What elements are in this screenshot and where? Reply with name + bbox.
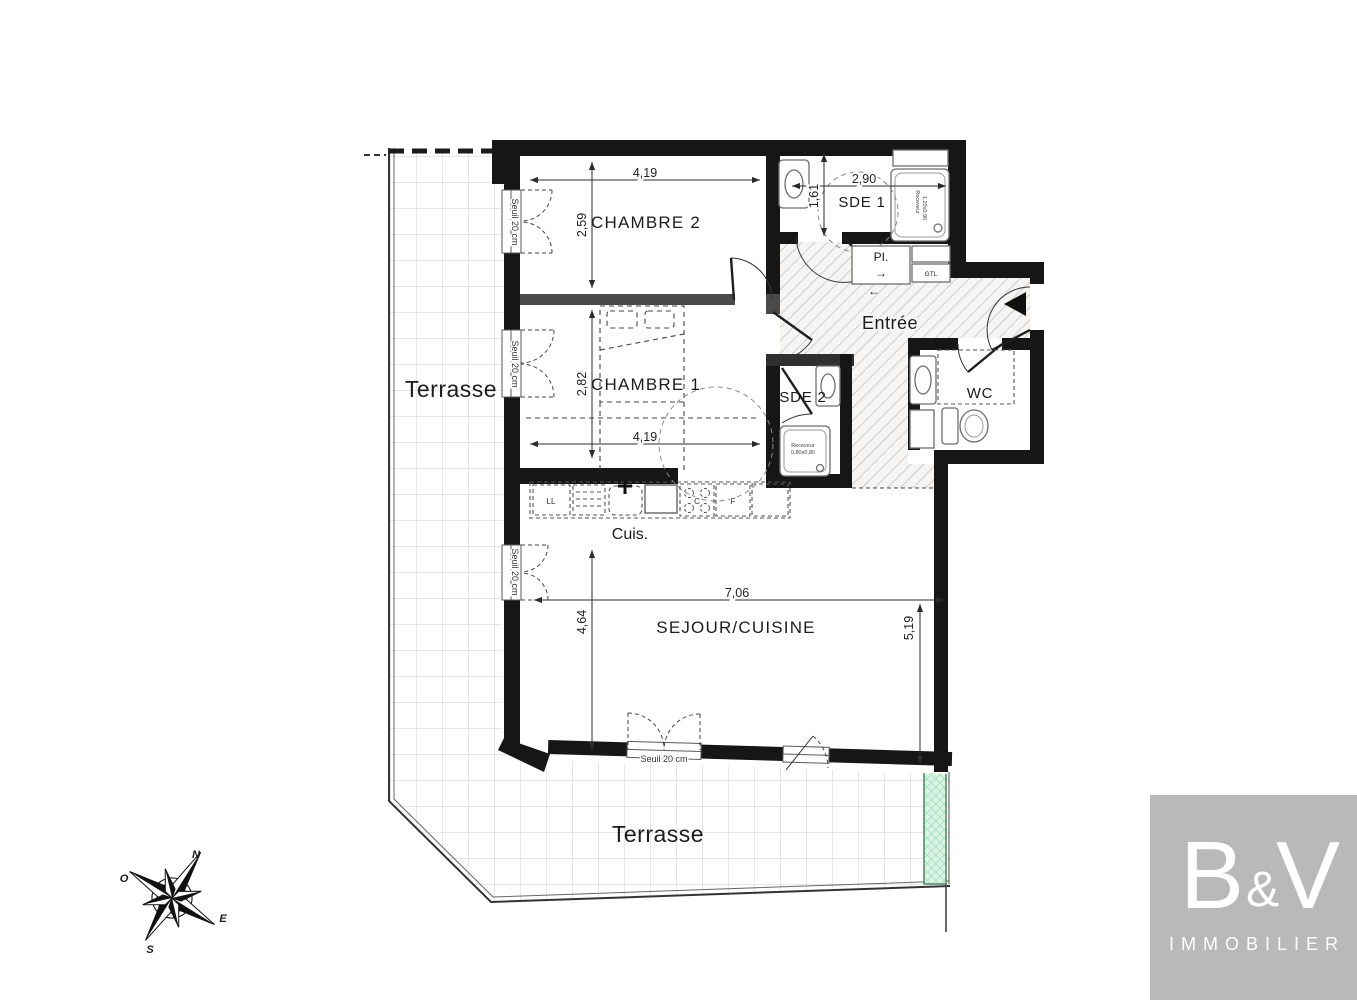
dim-sejour-width: 7,06 [725,586,749,600]
room-label-chambre2: CHAMBRE 2 [591,213,701,232]
seuil-label-4: Seuil 20 cm [640,754,687,764]
room-label-chambre1: CHAMBRE 1 [591,375,701,394]
arrow-left-icon: ← [868,284,880,298]
compass-east-label: E [219,913,227,925]
compass-west-label: O [120,873,129,885]
arrow-right-icon: → [875,266,887,280]
dim-sde1-width: 2,90 [852,172,876,186]
floor-plan-page: Terrasse Terrasse [0,0,1357,1000]
terrace-left-label: Terrasse [405,376,497,402]
kitchen-unit [645,485,677,513]
room-label-cuisine: Cuis. [612,526,648,543]
washbasin-icon [779,160,809,208]
room-label-sde2: SDE 2 [779,389,826,406]
dim-sde1-height: 1,61 [807,184,821,208]
cabinet [910,410,934,448]
dim-chambre1-height: 2,82 [575,372,589,396]
terrace-bottom-label: Terrasse [612,821,704,847]
dim-sejour-height-left: 4,64 [575,610,589,634]
room-label-entree: Entrée [862,313,918,333]
shower-icon: Receveur 1,20x0,90 [891,169,949,241]
placard-label: PI. [874,250,889,264]
dim-sejour-height-right: 5,19 [902,616,916,640]
svg-text:1,20x0,90: 1,20x0,90 [921,196,927,220]
compass-rose-icon: N O E S [103,826,243,967]
toilet-icon [942,408,988,444]
planter-green-element [924,772,946,884]
seuil-label-1: Seuil 20 cm [510,198,520,245]
svg-text:C: C [694,497,700,506]
svg-text:Receveur: Receveur [914,190,920,214]
compass-north-label: N [192,849,201,861]
shower-icon: Receveur 0,80x0,80 [780,426,830,476]
dim-chambre1-width: 4,19 [633,430,657,444]
shelf [893,150,948,166]
gtl-label: GTL [925,271,938,278]
compass-south-label: S [146,944,154,956]
svg-text:Receveur: Receveur [791,443,815,449]
dim-chambre2-height: 2,59 [575,213,589,237]
svg-text:LL: LL [547,497,556,506]
svg-text:F: F [731,497,736,506]
floor-plan-drawing: Terrasse Terrasse [0,0,1357,1000]
room-label-wc: WC [967,385,994,402]
seuil-label-2: Seuil 20 cm [510,340,520,387]
dim-chambre2-width: 4,19 [633,166,657,180]
logo-subtitle: IMMOBILIER [1169,934,1345,954]
seuil-label-3: Seuil 20 cm [510,548,520,595]
room-label-sde1: SDE 1 [838,194,885,211]
agency-logo: B & V IMMOBILIER [1150,795,1357,1000]
room-label-sejour: SEJOUR/CUISINE [656,618,815,637]
washbasin-icon [910,356,936,404]
svg-text:0,80x0,80: 0,80x0,80 [791,450,815,456]
